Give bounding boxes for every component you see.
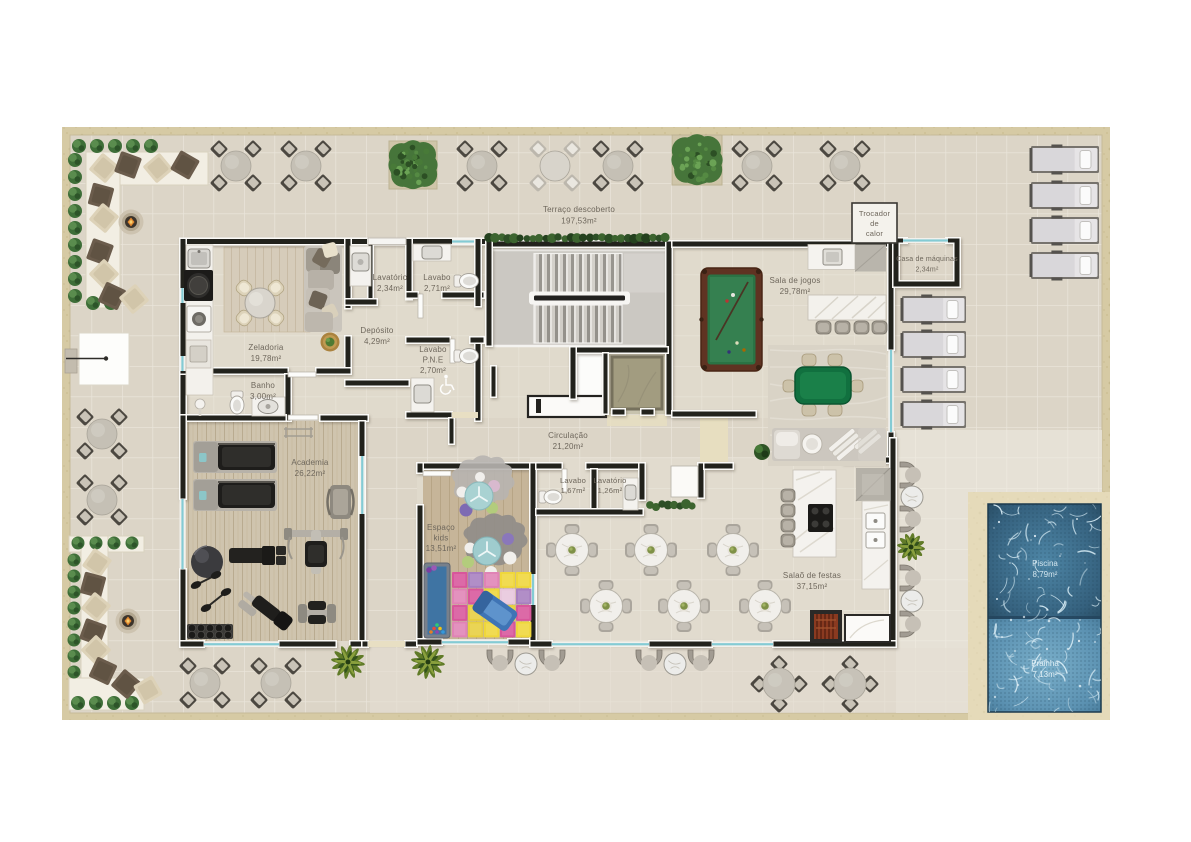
- svg-text:4,29m²: 4,29m²: [364, 337, 390, 346]
- svg-text:2,34m²: 2,34m²: [916, 267, 939, 274]
- svg-text:kids: kids: [433, 534, 448, 543]
- svg-text:19,78m²: 19,78m²: [251, 354, 282, 363]
- svg-text:Casa de máquinas: Casa de máquinas: [896, 256, 958, 263]
- svg-text:8,79m²: 8,79m²: [1033, 570, 1058, 579]
- svg-text:1,26m²: 1,26m²: [598, 486, 623, 495]
- svg-text:1,67m²: 1,67m²: [561, 486, 586, 495]
- svg-text:calor: calor: [866, 229, 884, 238]
- svg-text:Zeladoria: Zeladoria: [248, 343, 284, 352]
- svg-text:Depósito: Depósito: [360, 326, 394, 335]
- svg-text:2,71m²: 2,71m²: [424, 284, 450, 293]
- svg-text:2,34m²: 2,34m²: [377, 284, 403, 293]
- svg-text:26,22m²: 26,22m²: [295, 469, 326, 478]
- svg-text:Lavabo: Lavabo: [560, 476, 586, 485]
- svg-text:197,53m²: 197,53m²: [561, 217, 597, 226]
- svg-text:37,15m²: 37,15m²: [797, 582, 828, 591]
- svg-text:de: de: [870, 219, 879, 228]
- svg-text:Academia: Academia: [291, 458, 329, 467]
- svg-text:Lavatório: Lavatório: [373, 273, 408, 282]
- svg-text:7,13m²: 7,13m²: [1033, 670, 1058, 679]
- svg-text:Lavabo: Lavabo: [419, 345, 447, 354]
- svg-text:Terraço descoberto: Terraço descoberto: [543, 205, 615, 214]
- svg-text:Lavatório: Lavatório: [593, 476, 626, 485]
- svg-text:Prainha: Prainha: [1031, 659, 1059, 668]
- svg-text:Espaço: Espaço: [427, 523, 455, 532]
- svg-text:P.N.E: P.N.E: [423, 356, 444, 365]
- svg-text:Banho: Banho: [251, 381, 275, 390]
- svg-text:Circulação: Circulação: [548, 431, 588, 440]
- svg-text:3,00m²: 3,00m²: [250, 392, 276, 401]
- svg-text:2,70m²: 2,70m²: [420, 366, 446, 375]
- svg-text:Salaõ de festas: Salaõ de festas: [783, 571, 841, 580]
- svg-text:Trocador: Trocador: [859, 209, 891, 218]
- svg-text:Piscina: Piscina: [1032, 559, 1058, 568]
- svg-text:29,78m²: 29,78m²: [780, 287, 811, 296]
- svg-text:13,51m²: 13,51m²: [426, 544, 457, 553]
- svg-text:21,20m²: 21,20m²: [553, 442, 584, 451]
- svg-text:Sala de jogos: Sala de jogos: [769, 276, 820, 285]
- svg-text:Lavabo: Lavabo: [423, 273, 451, 282]
